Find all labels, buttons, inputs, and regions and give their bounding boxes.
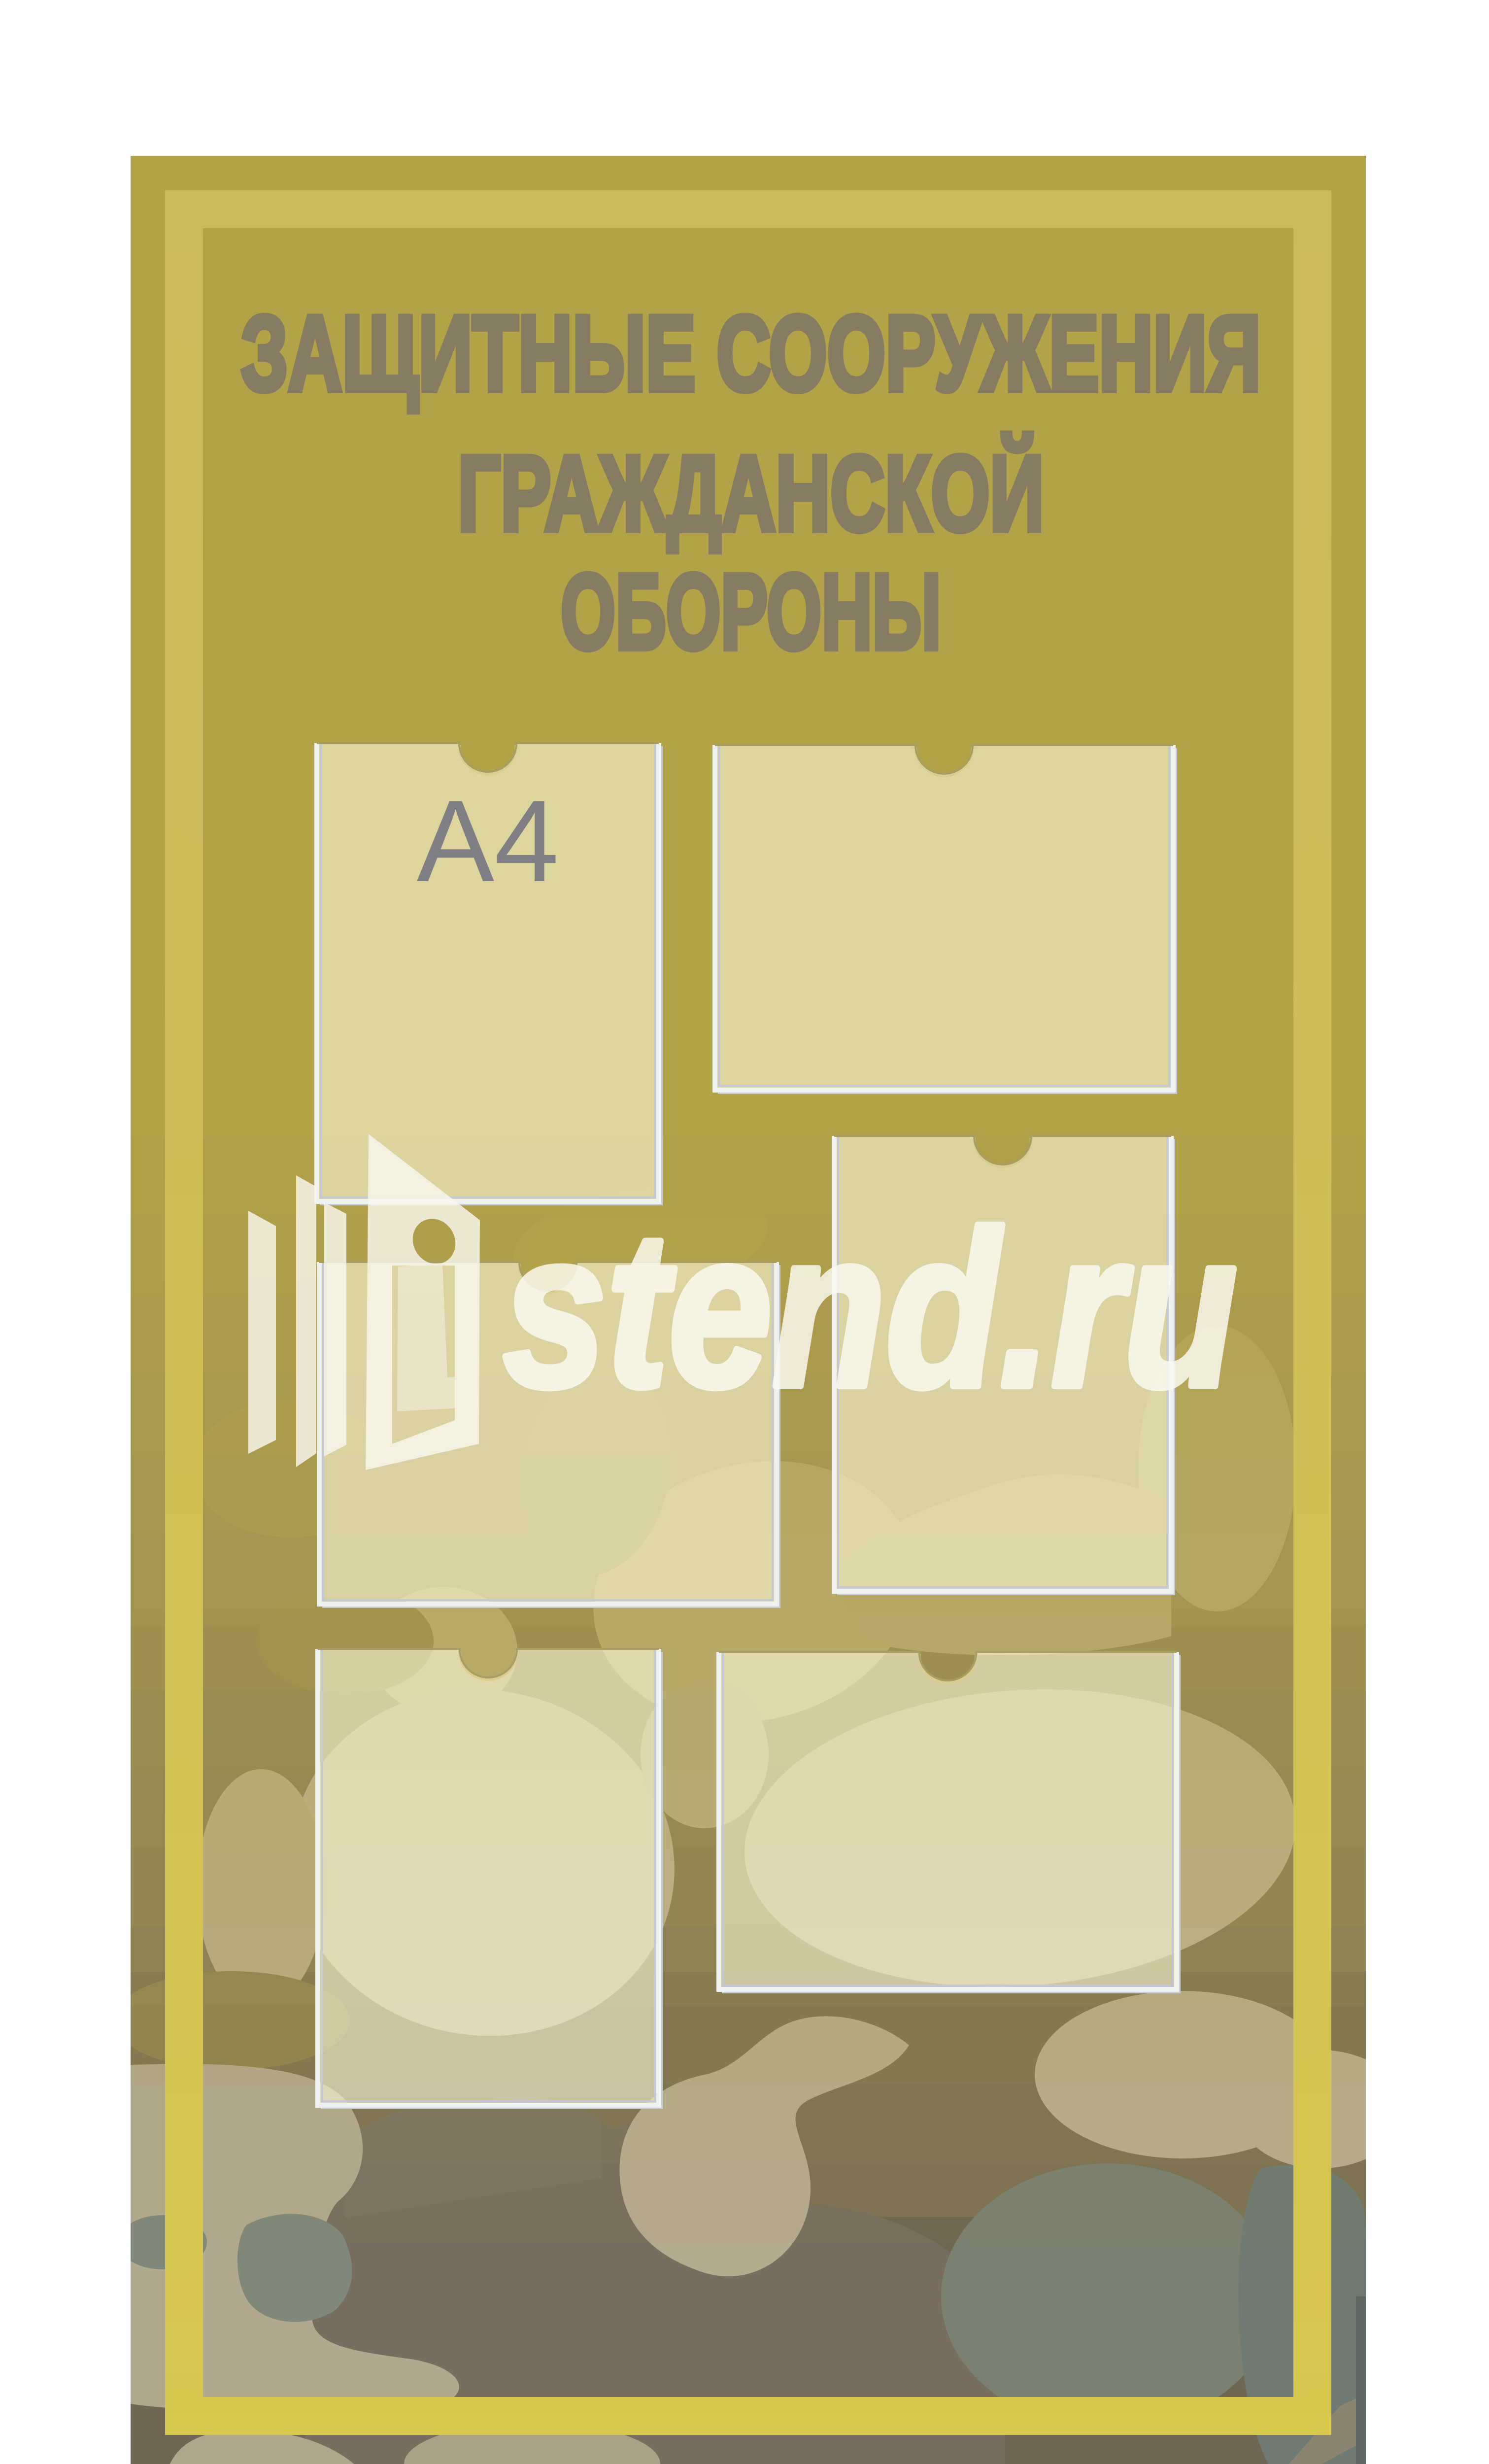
svg-text:stend.ru: stend.ru xyxy=(503,1186,1237,1433)
svg-text:ЗАЩИТНЫЕ СООРУЖЕНИЯ: ЗАЩИТНЫЕ СООРУЖЕНИЯ xyxy=(241,294,1261,413)
svg-text:A4: A4 xyxy=(417,776,559,906)
svg-text:ОБОРОНЫ: ОБОРОНЫ xyxy=(561,552,941,671)
svg-text:ГРАЖДАНСКОЙ: ГРАЖДАНСКОЙ xyxy=(458,433,1044,553)
